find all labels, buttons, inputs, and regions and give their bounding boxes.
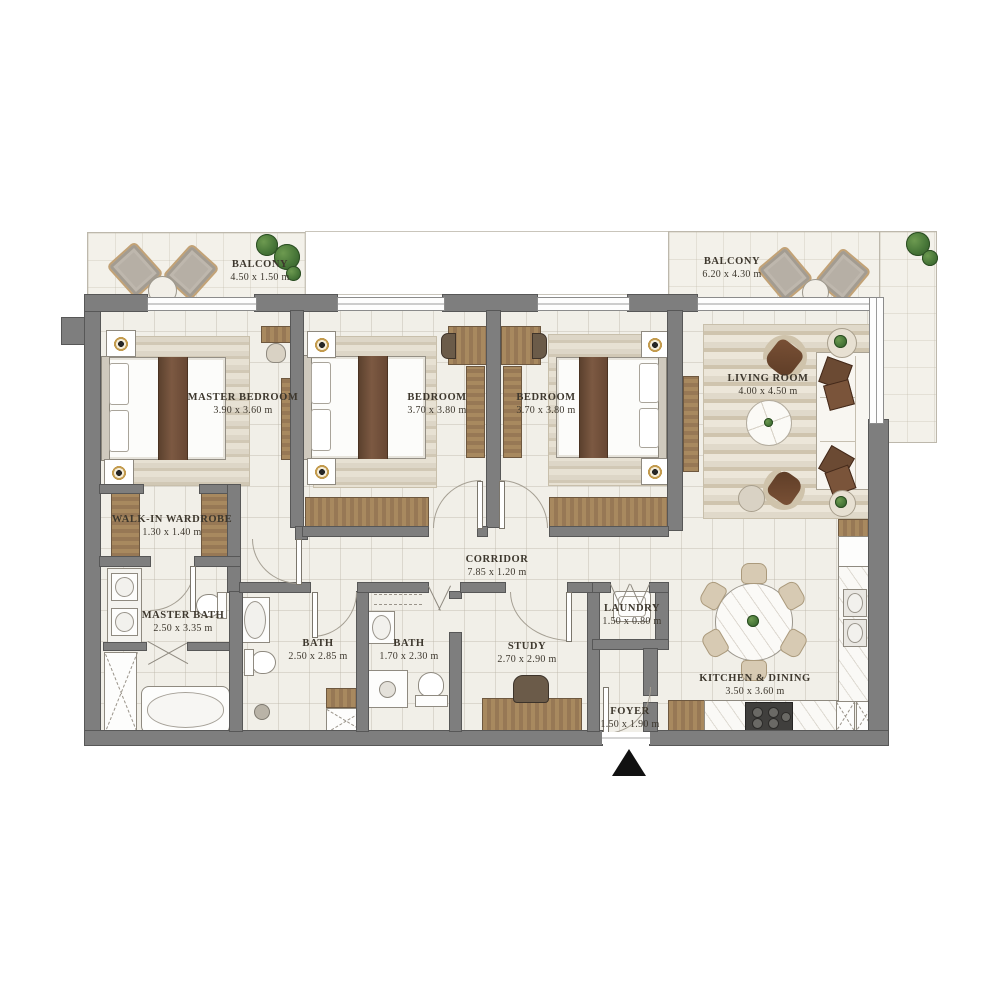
shower-head bbox=[254, 704, 270, 720]
window bbox=[697, 297, 871, 311]
desk-chair bbox=[532, 333, 547, 359]
room-name: BEDROOM bbox=[407, 392, 466, 403]
nightstand bbox=[106, 330, 136, 357]
wall bbox=[200, 485, 228, 493]
window bbox=[869, 297, 884, 424]
bedroom2-low-wardrobe bbox=[549, 497, 672, 528]
room-name: MASTER BATH bbox=[142, 610, 225, 621]
door-leaf bbox=[296, 539, 302, 585]
shower-mat bbox=[326, 688, 361, 708]
bedroom1-low-wardrobe bbox=[305, 497, 429, 528]
dining-chair bbox=[741, 563, 767, 584]
bed-throw bbox=[358, 356, 388, 459]
wall bbox=[450, 592, 461, 598]
nightstand bbox=[104, 459, 134, 486]
door-leaf bbox=[190, 566, 196, 612]
wall bbox=[188, 643, 230, 650]
room-dims: 1.50 x 1.90 m bbox=[600, 718, 659, 731]
pillow bbox=[311, 362, 331, 404]
window bbox=[537, 297, 630, 311]
toilet-tank bbox=[244, 649, 254, 676]
room-name: BALCONY bbox=[232, 259, 288, 270]
office-chair bbox=[513, 675, 549, 703]
room-name: BALCONY bbox=[704, 256, 760, 267]
nightstand bbox=[641, 458, 669, 485]
headboard bbox=[658, 356, 667, 459]
wall bbox=[104, 643, 146, 650]
toilet bbox=[418, 672, 444, 697]
window bbox=[337, 297, 445, 311]
pillow bbox=[109, 363, 129, 405]
room-name: BATH bbox=[393, 638, 424, 649]
floor-plan: BALCONY 4.50 x 1.50 m BALCONY 6.20 x 4.3… bbox=[0, 0, 1000, 1000]
room-dims: 3.70 x 3.80 m bbox=[516, 404, 575, 417]
wall bbox=[291, 311, 303, 527]
wall bbox=[85, 295, 100, 745]
wall bbox=[85, 731, 602, 745]
pillow bbox=[639, 363, 659, 403]
room-name: MASTER BEDROOM bbox=[188, 392, 299, 403]
door-leaf bbox=[477, 481, 483, 529]
kitchen-sink bbox=[843, 589, 867, 617]
room-label-foyer: FOYER 1.50 x 1.90 m bbox=[600, 705, 659, 731]
plant bbox=[747, 615, 759, 627]
bed-throw bbox=[579, 357, 608, 458]
room-name: LAUNDRY bbox=[604, 603, 660, 614]
door-leaf bbox=[499, 481, 505, 529]
room-dims: 3.70 x 3.80 m bbox=[407, 404, 466, 417]
room-name: KITCHEN & DINING bbox=[699, 673, 810, 684]
room-label-master-bath: MASTER BATH 2.50 x 3.35 m bbox=[142, 609, 225, 635]
room-name: STUDY bbox=[508, 641, 546, 652]
study-desk bbox=[482, 698, 582, 733]
wall bbox=[461, 583, 505, 592]
wall bbox=[869, 420, 888, 745]
wall bbox=[100, 485, 143, 493]
room-dims: 4.00 x 4.50 m bbox=[727, 385, 808, 398]
room-label-kitchen-dining: KITCHEN & DINING 3.50 x 3.60 m bbox=[699, 672, 810, 698]
room-label-bath-1: BATH 2.50 x 2.85 m bbox=[288, 637, 347, 663]
wall bbox=[650, 583, 668, 592]
wall bbox=[550, 527, 668, 536]
bathtub bbox=[141, 686, 230, 734]
room-label-balcony-right: BALCONY 6.20 x 4.30 m bbox=[702, 255, 761, 281]
window bbox=[147, 297, 257, 311]
room-dims: 3.50 x 3.60 m bbox=[699, 685, 810, 698]
room-dims: 1.30 x 1.40 m bbox=[112, 526, 232, 539]
bedroom1-wardrobe bbox=[466, 366, 485, 458]
bathroom-sink bbox=[111, 608, 138, 636]
nightstand bbox=[307, 458, 336, 485]
entry-threshold bbox=[602, 732, 650, 744]
wall bbox=[650, 731, 888, 745]
room-name: BATH bbox=[302, 638, 333, 649]
room-name: CORRIDOR bbox=[466, 554, 529, 565]
kitchen-sink bbox=[843, 619, 867, 647]
shower-drain bbox=[379, 681, 396, 698]
room-dims: 7.85 x 1.20 m bbox=[466, 566, 529, 579]
wall bbox=[303, 527, 428, 536]
room-label-corridor: CORRIDOR 7.85 x 1.20 m bbox=[466, 553, 529, 579]
room-dims: 6.20 x 4.30 m bbox=[702, 268, 761, 281]
bed-throw bbox=[158, 357, 188, 460]
roof-void bbox=[305, 231, 669, 295]
door-leaf bbox=[312, 592, 318, 638]
wall bbox=[668, 311, 682, 530]
wall bbox=[85, 295, 147, 311]
room-name: LIVING ROOM bbox=[727, 373, 808, 384]
entrance-arrow-icon bbox=[612, 749, 646, 776]
room-dims: 2.50 x 2.85 m bbox=[288, 650, 347, 663]
wall bbox=[443, 295, 537, 311]
bathroom-sink bbox=[111, 573, 138, 601]
pillow bbox=[109, 410, 129, 452]
wall bbox=[358, 583, 428, 592]
wall bbox=[593, 640, 668, 649]
wall bbox=[255, 295, 337, 311]
room-name: BEDROOM bbox=[516, 392, 575, 403]
room-dims: 1.70 x 2.30 m bbox=[379, 650, 438, 663]
bathroom-sink bbox=[240, 597, 270, 643]
room-label-bedroom-2: BEDROOM 3.70 x 3.80 m bbox=[516, 391, 575, 417]
room-dims: 3.90 x 3.60 m bbox=[188, 404, 299, 417]
nightstand bbox=[307, 331, 336, 358]
plant bbox=[764, 418, 773, 427]
room-dims: 2.50 x 3.35 m bbox=[142, 622, 225, 635]
room-label-bath-2: BATH 1.70 x 2.30 m bbox=[379, 637, 438, 663]
pillow bbox=[311, 409, 331, 451]
room-name: WALK-IN WARDROBE bbox=[112, 514, 232, 525]
wall bbox=[100, 557, 150, 566]
side-table bbox=[738, 485, 765, 512]
cooktop bbox=[745, 702, 793, 731]
desk-chair bbox=[441, 333, 456, 359]
room-label-master-bedroom: MASTER BEDROOM 3.90 x 3.60 m bbox=[188, 391, 299, 417]
plant bbox=[835, 496, 847, 508]
plant bbox=[922, 250, 938, 266]
room-label-walkin-wardrobe: WALK-IN WARDROBE 1.30 x 1.40 m bbox=[112, 513, 232, 539]
room-label-laundry: LAUNDRY 1.50 x 0.80 m bbox=[602, 602, 661, 628]
toilet-tank bbox=[415, 695, 448, 707]
pillow bbox=[639, 408, 659, 448]
wall bbox=[588, 590, 599, 731]
toilet bbox=[252, 651, 276, 674]
door-leaf bbox=[566, 592, 572, 642]
wall bbox=[593, 583, 610, 592]
room-label-living-room: LIVING ROOM 4.00 x 4.50 m bbox=[727, 372, 808, 398]
nightstand bbox=[641, 331, 669, 358]
wall bbox=[568, 583, 593, 592]
kitchen-counter-wood bbox=[668, 700, 706, 733]
room-dims: 1.50 x 0.80 m bbox=[602, 615, 661, 628]
wall bbox=[628, 295, 697, 311]
kitchen-cabinet bbox=[838, 536, 872, 568]
stool bbox=[266, 343, 286, 363]
wall bbox=[230, 592, 242, 731]
room-dims: 2.70 x 2.90 m bbox=[497, 653, 556, 666]
wall bbox=[357, 592, 368, 731]
sofa-back bbox=[855, 356, 866, 486]
wall bbox=[450, 633, 461, 731]
plant bbox=[834, 335, 847, 348]
wall bbox=[195, 557, 240, 566]
room-dims: 4.50 x 1.50 m bbox=[230, 271, 289, 284]
room-name: FOYER bbox=[610, 706, 650, 717]
room-label-bedroom-1: BEDROOM 3.70 x 3.80 m bbox=[407, 391, 466, 417]
room-label-study: STUDY 2.70 x 2.90 m bbox=[497, 640, 556, 666]
tv-console bbox=[683, 376, 699, 472]
room-label-balcony-left: BALCONY 4.50 x 1.50 m bbox=[230, 258, 289, 284]
